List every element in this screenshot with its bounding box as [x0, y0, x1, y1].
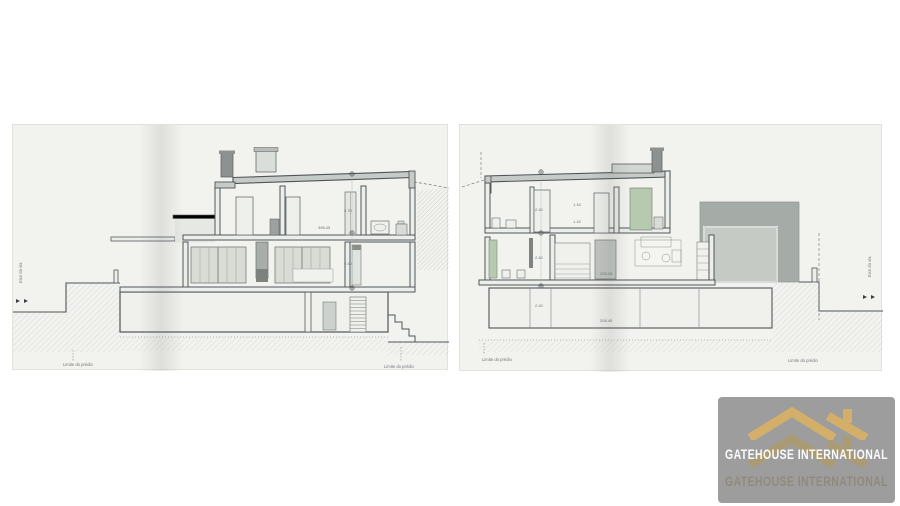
furniture-sketch: [635, 237, 681, 266]
fixture: [654, 217, 663, 229]
stair: [350, 297, 366, 332]
counter: [293, 269, 333, 282]
dimension-label: 2.40: [535, 303, 544, 308]
column: [256, 242, 268, 282]
basement-level: [489, 288, 772, 328]
dimension-label: 1.16: [573, 219, 582, 224]
left-drawing-sheet: 2.70 2.40 498.45 Limite do prédio Limite…: [12, 124, 448, 370]
boundary-dashed-line: [462, 152, 484, 187]
bathroom-fixtures: [492, 218, 516, 228]
door-leaf: [286, 197, 300, 235]
right-drawing-sheet: 2.40 1.16 1.16 2.40 203.08 2.40 208.45 L…: [459, 124, 882, 371]
axis-arrow-icon: [863, 295, 875, 299]
scan-fold-shadow: [590, 125, 630, 372]
limit-label: Limite do prédio: [482, 357, 512, 362]
upper-floor: [485, 183, 670, 233]
scan-fold-shadow: [139, 125, 183, 371]
level-label: 498.45: [318, 225, 331, 230]
green-glazing: [630, 188, 652, 230]
dimension-label: 2.40: [535, 207, 544, 212]
door-leaf: [529, 238, 533, 268]
shelving: [697, 242, 709, 280]
left-section-drawing: 2.70 2.40 498.45 Limite do prédio Limite…: [13, 125, 449, 371]
bathroom-fixtures: [371, 221, 407, 235]
watermark-logo: GATEHOUSE INTERNATIONAL GATEHOUSE INTERN…: [718, 397, 895, 503]
adjacent-massing: [700, 202, 799, 282]
wardrobe: [555, 243, 590, 280]
limit-label: Limite do prédio: [63, 362, 93, 367]
right-section-drawing: 2.40 1.16 1.16 2.40 203.08 2.40 208.45 L…: [460, 125, 883, 372]
chimney: [254, 148, 278, 173]
door-leaf: [236, 197, 253, 235]
dimension-label: 2.40: [344, 261, 353, 266]
bathroom-fixtures: [502, 270, 525, 278]
limit-label: Limite do prédio: [788, 358, 818, 363]
limit-label: Limite do prédio: [384, 364, 414, 369]
exterior-steps: [388, 315, 415, 342]
brand-text-shadow: GATEHOUSE INTERNATIONAL: [725, 474, 888, 489]
chimney: [219, 151, 235, 178]
fixture: [270, 219, 279, 235]
page: 2.70 2.40 498.45 Limite do prédio Limite…: [0, 0, 900, 506]
dimension-label: 1.16: [573, 202, 582, 207]
axis-arrow-icon: [16, 299, 28, 303]
upper-floor: [183, 186, 415, 240]
dimension-label: 2.40: [535, 255, 544, 260]
dimension-label: 2.70: [344, 208, 353, 213]
brand-text: GATEHOUSE INTERNATIONAL: [725, 447, 888, 462]
road-axis-label: Eixo da via: [18, 262, 23, 283]
roof-icon: [742, 404, 872, 440]
shower-glazing: [489, 240, 497, 278]
roof: [215, 148, 415, 189]
cupboard: [345, 192, 356, 235]
road-axis-label: Eixo da via: [867, 256, 872, 277]
middle-right-room: [345, 242, 415, 287]
chimney: [650, 148, 664, 173]
watermark-main-copy: GATEHOUSE INTERNATIONAL: [718, 404, 895, 462]
